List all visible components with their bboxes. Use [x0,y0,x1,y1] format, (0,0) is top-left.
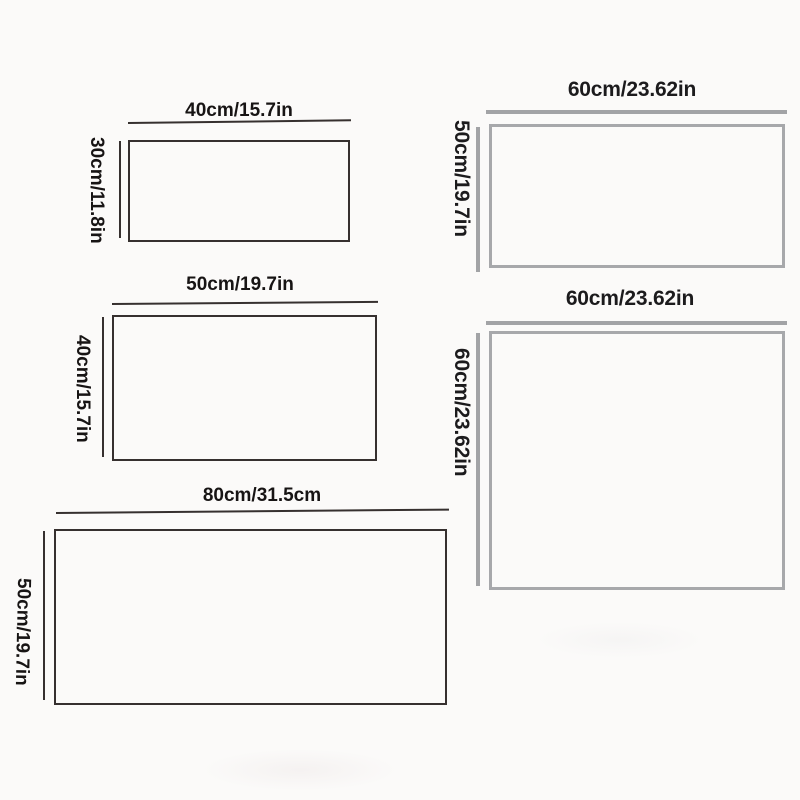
height-dimension-line [476,127,480,272]
width-dimension-line [112,301,378,305]
width-dimension-label: 50cm/19.7in [160,274,320,296]
width-dimension-line [486,110,787,114]
height-dimension-line [43,531,45,700]
width-dimension-label: 40cm/15.7in [159,100,319,122]
height-dimension-label: 50cm/19.7in [449,120,473,237]
size-diagram-80x50: 80cm/31.5cm 50cm/19.7in [0,0,800,800]
height-dimension-label: 30cm/11.8in [85,137,107,244]
width-dimension-label: 60cm/23.62in [540,287,720,311]
rectangle-outline [489,331,785,590]
size-diagram-60x50: 60cm/23.62in 50cm/19.7in [0,0,800,800]
size-diagram-60x60: 60cm/23.62in 60cm/23.62in [0,0,800,800]
height-dimension-label: 50cm/19.7in [10,578,34,686]
size-chart-image: 40cm/15.7in 30cm/11.8in 50cm/19.7in 40cm… [0,0,800,800]
width-dimension-label: 60cm/23.62in [542,78,722,102]
height-dimension-line [119,141,121,238]
size-diagram-50x40: 50cm/19.7in 40cm/15.7in [0,0,800,800]
rectangle-outline [112,315,377,461]
height-dimension-label: 60cm/23.62in [449,348,473,476]
rectangle-outline [489,124,785,268]
rectangle-outline [54,529,447,705]
rectangle-outline [128,140,350,242]
height-dimension-line [476,333,480,586]
height-dimension-label: 40cm/15.7in [71,335,93,443]
width-dimension-line [128,119,351,124]
width-dimension-line [486,321,787,325]
width-dimension-line [56,509,449,514]
width-dimension-label: 80cm/31.5cm [182,485,342,507]
size-diagram-40x30: 40cm/15.7in 30cm/11.8in [0,0,800,800]
height-dimension-line [102,317,104,457]
